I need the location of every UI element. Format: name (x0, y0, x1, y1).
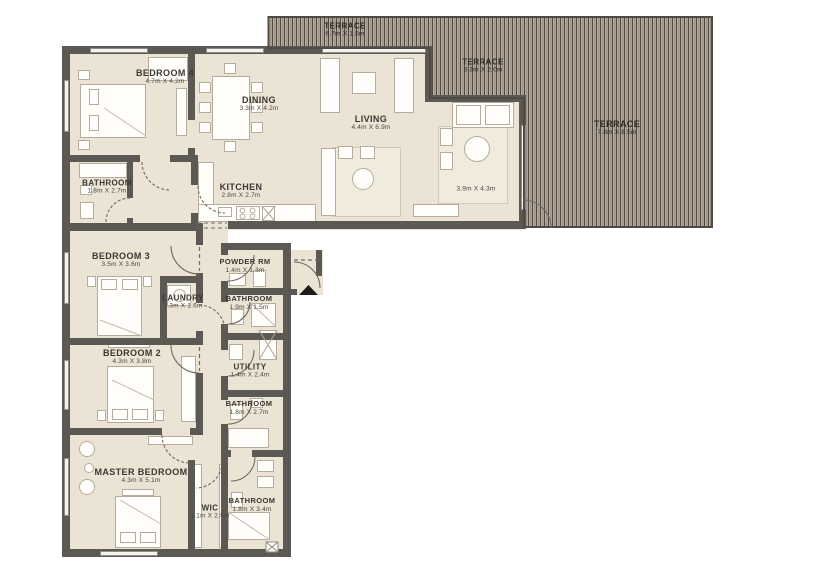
room-name: TERRACE (462, 58, 503, 67)
bedroom4-nightstand (78, 70, 90, 80)
window-marker (64, 458, 69, 516)
family-armchair (440, 128, 453, 146)
room-dims: 7.8m X 8.5m (594, 129, 640, 136)
kitchen-appliance (262, 206, 275, 221)
wall-segment (190, 428, 203, 435)
room-name: BEDROOM 2 (103, 348, 161, 358)
living-sofa (321, 148, 336, 216)
wall-segment (191, 155, 198, 185)
master-pillow (140, 532, 156, 543)
room-name: BEDROOM 4 (136, 68, 194, 78)
wall-segment (62, 155, 140, 162)
kitchen-sink (218, 207, 232, 217)
room-name: TERRACE (594, 119, 640, 129)
room-dims: 1.4m X 1.3m (219, 267, 270, 274)
bedroom3-pillow (122, 279, 138, 290)
bedroom3-nightstand (143, 276, 152, 287)
living-lounge-chair (394, 58, 414, 113)
bedroom2-pillow (132, 409, 148, 420)
dining-chair (199, 102, 211, 113)
room-name: WIC (190, 504, 229, 513)
bathtub (228, 428, 269, 448)
dining-chair (251, 82, 263, 93)
family-armchair (440, 152, 453, 170)
wall-segment (221, 450, 231, 457)
living-tv-console (413, 204, 459, 217)
window-marker (64, 80, 69, 132)
room-dims: 4.3m X 5.1m (94, 477, 187, 484)
room-label-utility: UTILITY 1.4m X 2.4m (230, 363, 269, 380)
dining-chair (251, 122, 263, 133)
master-pouf (79, 479, 95, 495)
bedroom4-wardrobe (176, 88, 187, 136)
living-armchair (360, 146, 375, 159)
room-dims: 1.8m X 3.4m (229, 506, 276, 513)
wall-segment (221, 243, 291, 250)
master-pouf (84, 463, 94, 473)
room-name: UTILITY (230, 363, 269, 372)
wall-segment (221, 390, 291, 397)
family-sofa-cushion (485, 105, 510, 125)
bedroom4-pillow (89, 89, 99, 105)
family-round-table (464, 136, 490, 162)
room-dims: 1.9m X 1.5m (226, 304, 273, 311)
bedroom2-pillow (112, 409, 128, 420)
living-side-table (352, 72, 376, 94)
room-label-bathroom-top: BATHROOM 1.8m X 2.7m (82, 179, 132, 196)
wall-segment (196, 331, 203, 345)
wall-segment (188, 54, 195, 120)
toilet (231, 309, 244, 325)
room-label-bedroom3: BEDROOM 3 3.5m X 3.6m (92, 251, 150, 269)
window-marker (206, 48, 264, 53)
room-label-bedroom2: BEDROOM 2 4.3m X 3.8m (103, 348, 161, 366)
dining-chair (199, 122, 211, 133)
master-pouf (79, 441, 95, 457)
wall-segment (316, 250, 322, 276)
floor-plan: TERRACE 6.7m X 1.5m TERRACE 3.3m X 2.0m … (0, 0, 833, 569)
room-label-terrace-mid: TERRACE 3.3m X 2.0m (462, 58, 503, 75)
room-label-kitchen: KITCHEN 2.8m X 2.7m (220, 182, 263, 200)
window-marker (100, 551, 158, 556)
room-label-living: LIVING 4.4m X 6.9m (351, 114, 390, 132)
room-dims: 1.3m X 1.6m (162, 303, 204, 310)
wall-segment (425, 46, 432, 102)
powder-sink (229, 273, 246, 286)
master-pillow (120, 532, 136, 543)
wall-segment (252, 450, 291, 457)
room-name: KITCHEN (220, 182, 263, 192)
bedroom2-nightstand (155, 410, 164, 421)
shower (228, 512, 270, 540)
kitchen-stove (236, 206, 260, 220)
bathroom-sink (257, 460, 274, 472)
bedroom4-pillow (89, 115, 99, 131)
room-label-bathroom-hall: BATHROOM 1.9m X 1.5m (226, 295, 273, 311)
window-marker (90, 48, 148, 53)
bathtub (79, 163, 127, 178)
room-name: TERRACE (324, 22, 365, 31)
bedroom4-nightstand (78, 140, 90, 150)
wall-segment (62, 549, 291, 557)
room-name: POWDER RM (219, 258, 270, 267)
room-dims: 6.7m X 1.5m (324, 31, 365, 38)
bathroom-sink (257, 476, 274, 488)
living-coffee-table (352, 168, 374, 190)
bedroom3-pillow (101, 279, 117, 290)
room-label-bathroom-mid: BATHROOM 1.8m X 2.7m (226, 400, 273, 416)
room-dims: 1.4m X 2.4m (230, 372, 269, 379)
wall-segment (62, 338, 196, 345)
room-name: BEDROOM 3 (92, 251, 150, 261)
room-dims: 3.5m X 3.6m (92, 261, 150, 268)
room-dims: 3.9m X 4.3m (456, 185, 495, 192)
room-dims: 4.7m X 4.2m (136, 78, 194, 85)
room-label-laundry: LAUNDRY 1.3m X 1.6m (162, 294, 204, 311)
wall-segment (425, 95, 526, 102)
window-marker (64, 360, 69, 410)
master-bench (122, 489, 154, 496)
window-marker (521, 125, 526, 210)
room-name: BATHROOM (229, 497, 276, 506)
room-dims: 4.3m X 3.8m (103, 358, 161, 365)
bedroom2-wardrobe (181, 356, 196, 422)
room-dims: 1.8m X 2.7m (82, 188, 132, 195)
room-dims: 3.3m X 2.0m (462, 67, 503, 74)
wall-segment (62, 223, 196, 231)
room-name: BATHROOM (226, 295, 273, 304)
room-label-bathroom-master: BATHROOM 1.8m X 3.4m (229, 497, 276, 513)
room-name: BATHROOM (226, 400, 273, 409)
wall-segment (196, 373, 203, 428)
wall-segment (221, 333, 291, 340)
bedroom3-nightstand (87, 276, 96, 287)
dining-chair (224, 141, 236, 152)
toilet (80, 202, 94, 219)
room-label-living-area2: 3.9m X 4.3m (456, 185, 495, 192)
window-marker (64, 252, 69, 304)
wall-segment (196, 223, 203, 245)
room-label-master: MASTER BEDROOM 4.3m X 5.1m (94, 467, 187, 485)
room-name: LIVING (351, 114, 390, 124)
wall-segment (62, 428, 162, 435)
dining-chair (199, 82, 211, 93)
room-dims: 4.4m X 6.9m (351, 124, 390, 131)
room-label-powder: POWDER RM 1.4m X 1.3m (219, 258, 270, 274)
bedroom2-nightstand (97, 410, 106, 421)
room-label-terrace-top: TERRACE 6.7m X 1.5m (324, 22, 365, 39)
utility-counter (229, 344, 243, 360)
wall-segment (221, 424, 228, 450)
room-dims: 3.3m X 4.2m (239, 105, 278, 112)
room-name: BATHROOM (82, 179, 132, 188)
living-armchair (338, 146, 353, 159)
room-label-terrace-right: TERRACE 7.8m X 8.5m (594, 119, 640, 137)
dining-chair (224, 63, 236, 74)
living-lounge-chair (320, 58, 340, 113)
room-label-bedroom4: BEDROOM 4 4.7m X 4.2m (136, 68, 194, 86)
room-name: LAUNDRY (162, 294, 204, 303)
room-label-dining: DINING 3.3m X 4.2m (239, 95, 278, 113)
wall-segment (228, 221, 526, 229)
master-tv-console (148, 436, 193, 445)
room-dims: 1.1m X 2.5m (190, 513, 229, 520)
room-label-wic: WIC 1.1m X 2.5m (190, 504, 229, 521)
room-dims: 1.8m X 2.7m (226, 409, 273, 416)
room-name: MASTER BEDROOM (94, 467, 187, 477)
room-name: DINING (239, 95, 278, 105)
terrace-sliding-door (322, 48, 426, 53)
room-dims: 2.8m X 2.7m (220, 192, 263, 199)
family-sofa-cushion (456, 105, 481, 125)
